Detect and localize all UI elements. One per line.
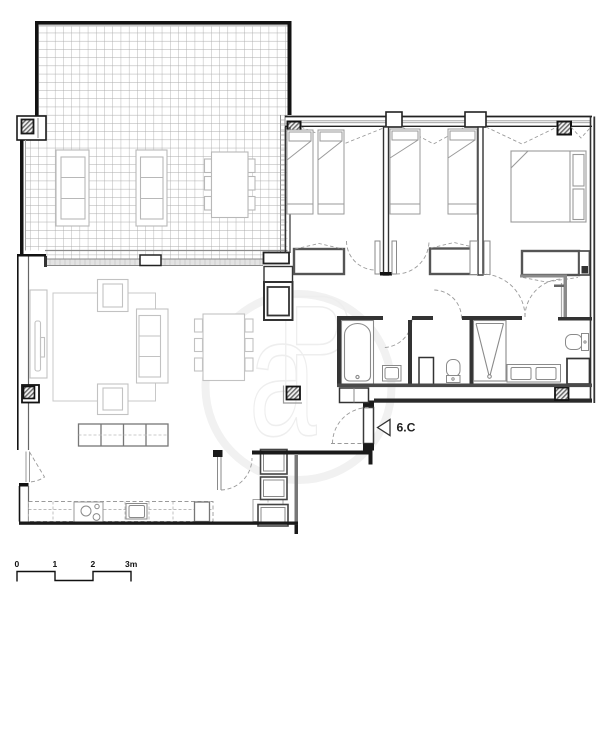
svg-text:6.C: 6.C xyxy=(397,421,416,435)
svg-text:2: 2 xyxy=(91,559,96,569)
svg-text:0: 0 xyxy=(15,559,20,569)
svg-text:1: 1 xyxy=(53,559,58,569)
svg-text:3m: 3m xyxy=(125,559,138,569)
